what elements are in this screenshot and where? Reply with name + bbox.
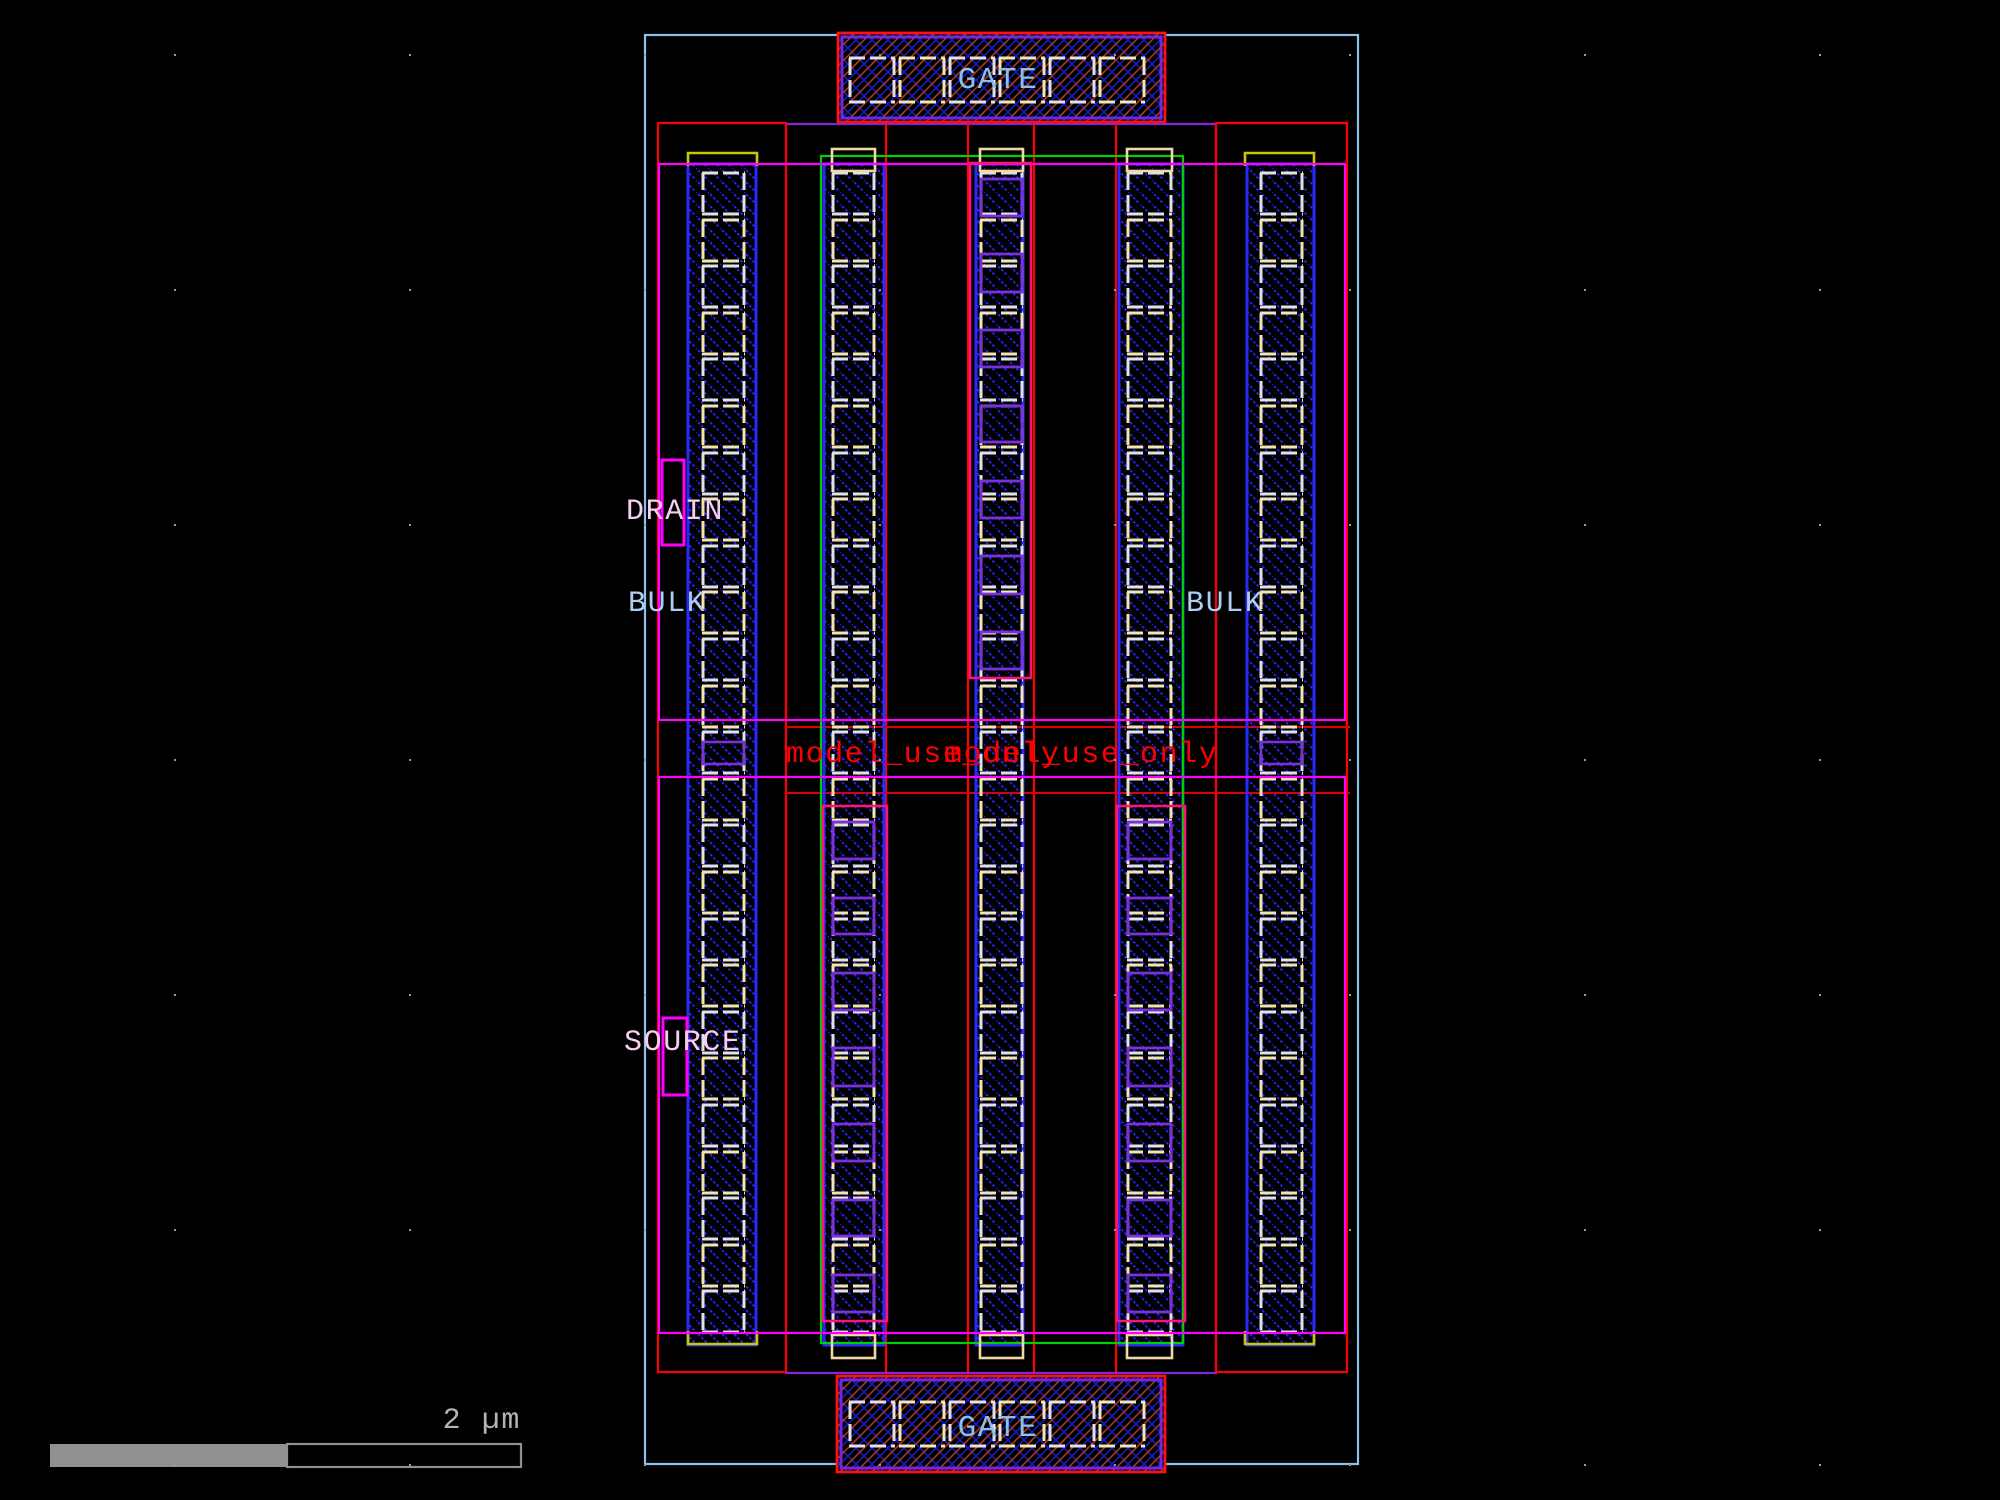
svg-text:BULK: BULK [628, 587, 706, 621]
svg-text:SOURCE: SOURCE [624, 1026, 742, 1060]
svg-text:GATE: GATE [958, 1411, 1039, 1446]
svg-text:BULK: BULK [1186, 587, 1264, 621]
svg-text:GATE: GATE [958, 63, 1039, 98]
svg-text:model_use_only: model_use_only [944, 738, 1218, 772]
svg-text:DRAIN: DRAIN [626, 495, 724, 529]
svg-text:2 µm: 2 µm [443, 1404, 521, 1438]
